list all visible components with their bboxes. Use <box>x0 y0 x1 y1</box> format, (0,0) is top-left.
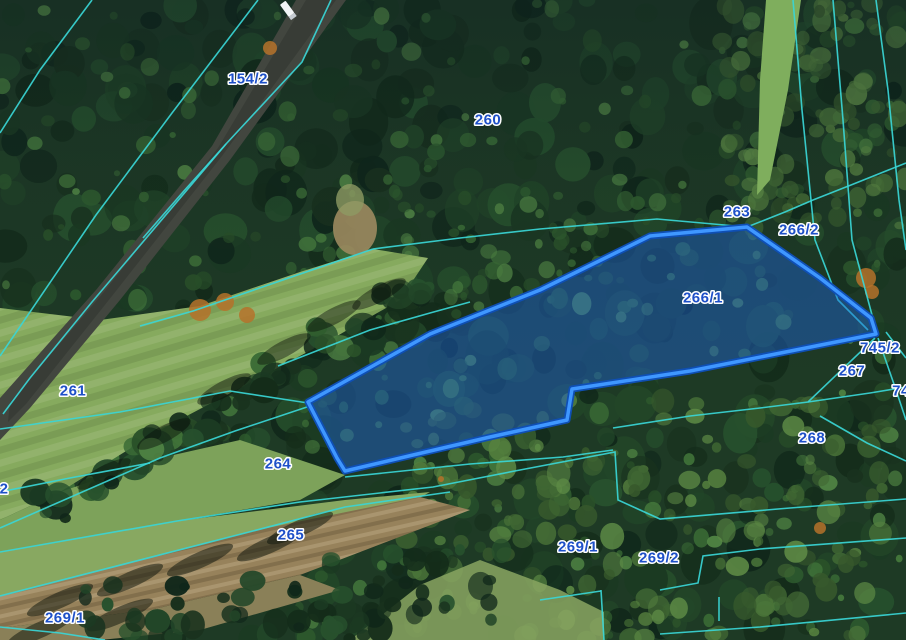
parcel-label: 260 <box>475 112 502 129</box>
parcel-label: 266/1 <box>683 290 723 307</box>
parcel-label: 265 <box>278 527 305 544</box>
parcel-label: 268 <box>799 430 826 447</box>
parcel-label: 154/2 <box>228 71 268 88</box>
parcel-label: 264 <box>265 456 292 473</box>
parcel-label: 269/1 <box>558 539 598 556</box>
parcel-label: 269/1 <box>45 610 85 627</box>
parcel-label: 2 <box>0 481 8 498</box>
parcel-label: 266/2 <box>779 222 819 239</box>
parcel-label: 74 <box>892 383 906 400</box>
map-canvas: 154/2260263266/2266/1745/226774261226426… <box>0 0 906 640</box>
aerial-parcel-map[interactable]: 154/2260263266/2266/1745/226774261226426… <box>0 0 906 640</box>
parcel-label: 263 <box>724 204 751 221</box>
parcel-label: 269/2 <box>639 550 679 567</box>
parcel-label: 745/2 <box>860 340 900 357</box>
parcel-label: 261 <box>60 383 87 400</box>
parcel-label: 267 <box>839 363 866 380</box>
